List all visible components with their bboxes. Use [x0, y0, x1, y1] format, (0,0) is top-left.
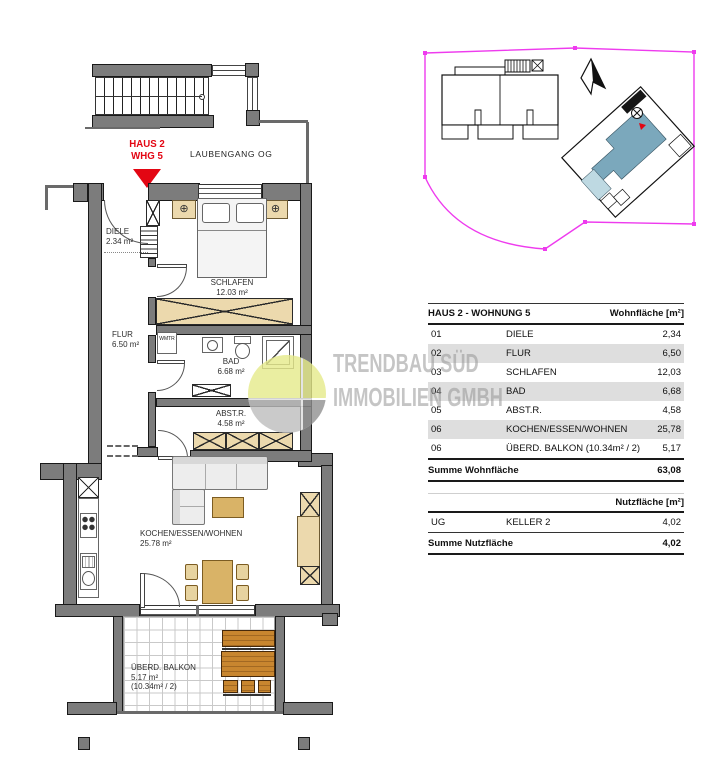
dining-chair: [185, 564, 198, 580]
site-plan: [415, 28, 715, 256]
floor-plan: HAUS 2 WHG 5 LAUBENGANG OG: [0, 0, 420, 757]
nightstand: [172, 200, 196, 219]
dining-chair: [185, 585, 198, 601]
dining-chair: [236, 564, 249, 580]
wall: [63, 463, 77, 610]
utility-table-col-header: Nutzfläche [m²]: [615, 497, 684, 508]
walkway-edge-line: [306, 122, 309, 183]
wall: [45, 185, 73, 188]
wall-mark: [78, 737, 90, 750]
dining-chair: [236, 585, 249, 601]
bath-cabinet: [192, 384, 231, 397]
landing-railing-horizontal: [212, 65, 246, 76]
neighbor-wall-stub: [283, 702, 333, 715]
wall: [156, 325, 312, 335]
wall: [137, 447, 158, 457]
pillow: [202, 203, 230, 223]
wall: [148, 297, 156, 325]
sideboard-end: [300, 566, 320, 585]
dining-table: [202, 560, 233, 604]
wall: [148, 392, 156, 447]
balcony-wall: [275, 616, 285, 714]
wall: [45, 185, 48, 210]
wall: [148, 335, 156, 363]
storage-shelf: [226, 432, 259, 450]
stair-stringer-top: [92, 64, 212, 77]
wall-mark: [298, 737, 310, 750]
unit-marker-line1: HAUS 2: [113, 139, 181, 151]
balcony-railing: [113, 711, 285, 714]
washer-dryer-label: WMTR: [158, 333, 176, 343]
walkway-edge-line: [258, 120, 308, 123]
shadow-line: [222, 648, 275, 650]
balcony-stool: [223, 680, 238, 693]
bedroom-door-arc: [157, 267, 187, 297]
bathroom-door-arc: [157, 363, 185, 391]
sink-bowl: [207, 340, 218, 351]
area-table-header: HAUS 2 - WOHNUNG 5 Wohnfläche [m²]: [428, 303, 684, 325]
watermark-logo: [248, 355, 326, 433]
wall: [73, 183, 88, 202]
coffee-table: [212, 497, 244, 518]
utility-table-header: Nutzfläche [m²]: [428, 493, 684, 513]
wall: [88, 183, 102, 465]
room-label-flur: FLUR6.50 m²: [112, 330, 139, 349]
balcony-table: [221, 651, 275, 677]
stair-edge-line: [85, 127, 160, 129]
watermark-text-line1: TRENDBAU SÜD: [333, 350, 479, 376]
table-row: UGKELLER 24,02: [428, 513, 684, 533]
wall: [321, 465, 333, 610]
area-boundary-dotted-line: [104, 252, 148, 253]
area-table-col-header: Wohnfläche [m²]: [610, 308, 684, 319]
sink-drainer: [82, 556, 95, 568]
balcony-wall: [113, 616, 123, 714]
sideboard-end: [300, 492, 320, 517]
kitchen-tall-cabinet: [78, 477, 99, 498]
site-building-haus1: [442, 60, 558, 139]
balcony-bench: [222, 630, 275, 647]
washer-dryer-closet: WMTR: [157, 332, 177, 354]
threshold-dashed-line: [107, 455, 138, 457]
balcony-stool: [241, 680, 255, 693]
unit-marker-label: HAUS 2 WHG 5: [113, 139, 181, 162]
balcony-stool: [258, 680, 271, 693]
area-table: HAUS 2 - WOHNUNG 5 Wohnfläche [m²] 01DIE…: [428, 303, 684, 555]
north-arrow-icon: [581, 59, 605, 94]
wall: [148, 258, 156, 267]
room-label-wohnen: KOCHEN/ESSEN/WOHNEN25.78 m²: [140, 529, 242, 548]
landing-railing-vertical: [247, 77, 258, 111]
blanket-line: [198, 230, 266, 231]
room-label-diele: DIELE2.34 m²: [106, 227, 133, 246]
sideboard: [297, 516, 320, 567]
stove: [80, 513, 97, 538]
landing-pillar-top: [245, 63, 259, 77]
pillow: [236, 203, 264, 223]
area-table-sum-row: Summe Wohnfläche63,08: [428, 458, 684, 482]
laubengang-label: LAUBENGANG OG: [190, 149, 272, 159]
storage-door-arc: [158, 430, 188, 458]
table-row: 06KOCHEN/ESSEN/WOHNEN25,78: [428, 420, 684, 439]
stair-treads: [95, 77, 209, 115]
door-mullion: [196, 605, 199, 616]
wardrobe: [156, 298, 293, 325]
surveyor-mark-icon: [632, 108, 643, 119]
neighbor-wall-stub: [67, 702, 117, 715]
threshold-dashed-line: [107, 445, 138, 447]
storage-shelf: [193, 432, 226, 450]
table-row: 06ÜBERD. BALKON (10.34m² / 2)5,17: [428, 439, 684, 458]
unit-marker-line2: WHG 5: [113, 151, 181, 163]
room-label-balkon: ÜBERD. BALKON5.17 m²(10.34m² / 2): [131, 663, 196, 692]
area-table-title: HAUS 2 - WOHNUNG 5: [428, 308, 530, 319]
floorplan-page: { "marker": { "line1": "HAUS 2", "line2"…: [0, 0, 725, 757]
kitchen-sink-bowl: [82, 571, 95, 586]
table-row: 01DIELE2,34: [428, 325, 684, 344]
utility-table-sum-row: Summe Nutzfläche4,02: [428, 533, 684, 555]
sofa-vertical: [172, 489, 205, 525]
shaft-box: [146, 200, 160, 226]
wall: [148, 183, 200, 201]
site-building-haus2: [561, 87, 694, 218]
wall: [322, 613, 338, 626]
room-label-schlafen: SCHLAFEN12.03 m²: [190, 278, 274, 297]
storage-shelf: [259, 432, 293, 450]
watermark-text-line2: IMMOBILIEN GMBH: [333, 384, 503, 410]
living-door-arc: [142, 573, 180, 607]
landing-pillar-bottom: [246, 110, 260, 126]
sofa-horizontal: [172, 456, 268, 490]
shadow-line: [223, 694, 271, 696]
